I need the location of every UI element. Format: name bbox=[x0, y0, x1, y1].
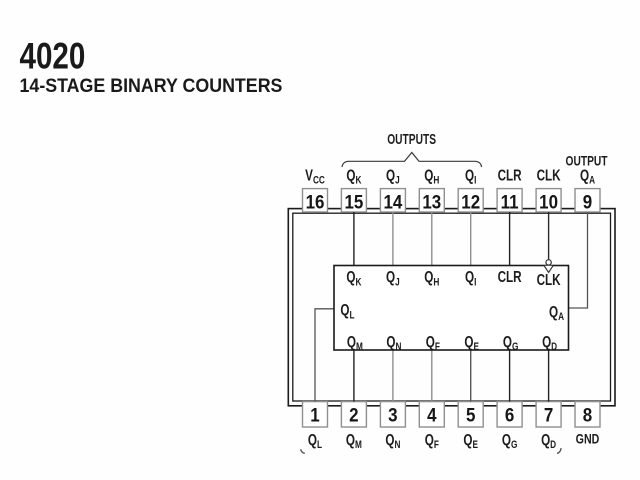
svg-text:3: 3 bbox=[388, 403, 397, 425]
svg-text:5: 5 bbox=[466, 403, 475, 425]
svg-text:4020: 4020 bbox=[20, 36, 86, 77]
svg-text:14-STAGE BINARY COUNTERS: 14-STAGE BINARY COUNTERS bbox=[20, 74, 283, 96]
svg-text:OUTPUTS: OUTPUTS bbox=[387, 131, 436, 147]
svg-text:8: 8 bbox=[583, 403, 592, 425]
svg-text:GND: GND bbox=[576, 431, 600, 447]
svg-text:CLR: CLR bbox=[498, 167, 522, 184]
svg-text:11: 11 bbox=[501, 190, 519, 212]
svg-text:10: 10 bbox=[539, 190, 558, 212]
svg-text:2: 2 bbox=[349, 403, 358, 425]
svg-text:4: 4 bbox=[427, 403, 437, 425]
svg-text:12: 12 bbox=[461, 190, 480, 212]
svg-text:OUTPUT: OUTPUT bbox=[566, 153, 608, 169]
svg-text:CLR: CLR bbox=[498, 269, 522, 286]
svg-text:CLK: CLK bbox=[537, 167, 561, 184]
svg-text:6: 6 bbox=[505, 403, 514, 425]
svg-text:CLK: CLK bbox=[537, 271, 561, 288]
svg-text:15: 15 bbox=[344, 190, 363, 212]
svg-text:9: 9 bbox=[583, 190, 592, 212]
svg-text:13: 13 bbox=[422, 190, 441, 212]
svg-text:16: 16 bbox=[306, 190, 325, 212]
svg-text:14: 14 bbox=[383, 190, 403, 212]
svg-text:7: 7 bbox=[544, 403, 553, 425]
svg-text:1: 1 bbox=[310, 403, 319, 425]
